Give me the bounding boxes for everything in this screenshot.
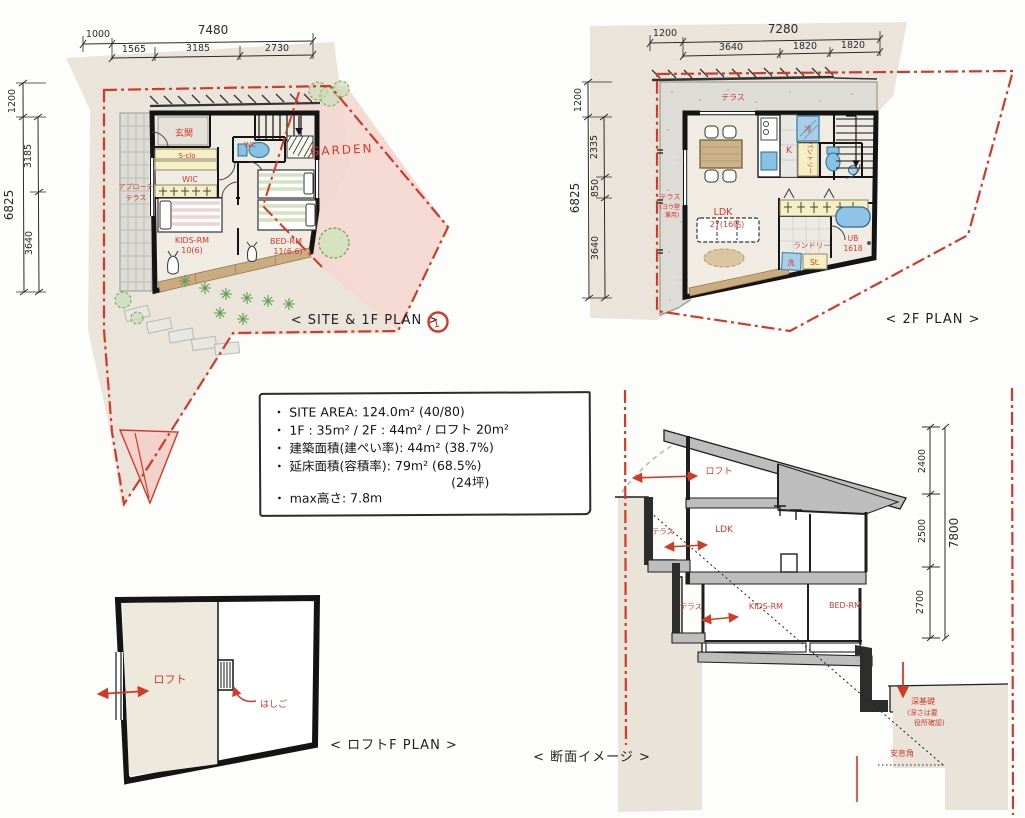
- rug: [704, 249, 744, 267]
- dim-sec-2700: 2700: [915, 590, 926, 614]
- roof-wedge: [778, 464, 898, 514]
- sec-label-repose: 安息角: [890, 748, 914, 758]
- dim-2f-2335: 2335: [589, 135, 600, 159]
- label-storage: St.: [810, 258, 820, 267]
- caption-1f: < SITE & 1F PLAN >: [291, 313, 440, 328]
- loft-window: [114, 652, 123, 720]
- sec-label-bed: BED-RM: [829, 601, 861, 610]
- ground-right: [890, 683, 1008, 810]
- sheet-marker-number: 1: [431, 316, 441, 330]
- sec-label-foundation: 深基礎: [911, 696, 935, 706]
- sec-label-foundation-n1: (深さは要: [907, 708, 938, 717]
- label-approach: アプローチ: [119, 183, 154, 191]
- label-bed-area: 11(6.6): [273, 247, 302, 256]
- caption-2f: < 2F PLAN >: [886, 312, 981, 327]
- section-view: ロフト テラス LDK テラス KIDS-RM BED-RM 深基礎 (深さは要…: [533, 388, 1013, 815]
- dim-1f-6825: 6825: [2, 190, 16, 221]
- sec-label-foundation-n2: 役所確認): [914, 718, 945, 727]
- dims-1f-left: [16, 80, 46, 295]
- note-total-area: ・ 延床面積(容積率): 79m² (68.5%): [273, 457, 579, 477]
- note-floor-areas: ・ 1F : 35m² / 2F : 44m² / ロフト 20m²: [273, 420, 579, 440]
- label-washer: 洗: [788, 258, 795, 267]
- dim-sec-2400: 2400: [917, 449, 928, 473]
- label-bath: UB: [848, 234, 859, 243]
- kids-bed: [158, 198, 222, 232]
- loft-floor: [122, 602, 218, 776]
- dim-sec-2500: 2500: [917, 519, 928, 543]
- garden-tree: [319, 228, 349, 258]
- label-terrace-side: テラス: [660, 193, 681, 201]
- label-bath-size: 1618: [843, 244, 862, 253]
- terrace-slab-1f: [672, 633, 705, 643]
- label-bed-rm: BED-RM: [270, 237, 302, 246]
- label-loft: ロフト: [154, 673, 187, 686]
- loft-slab: [686, 498, 778, 508]
- 1f-slab: [698, 652, 872, 666]
- dim-2f-6825: 6825: [568, 183, 582, 214]
- 2f-slab: [686, 572, 866, 584]
- dim-sec-7800: 7800: [947, 518, 961, 549]
- label-ldk: LDK: [714, 207, 734, 218]
- dim-1f-3640: 3640: [24, 231, 35, 255]
- plan-2f: テラス テラス (ヨウ壁 兼用) LDK 27(16帖) K 冷 パントリー ラ…: [568, 22, 1013, 331]
- sec-label-terrace1f: テラス: [680, 602, 702, 611]
- wic-closet: [155, 185, 217, 198]
- note-building-area: ・ 建築面積(建ぺい率): 44m² (38.7%): [273, 438, 579, 458]
- dim-1f-3185l: 3185: [23, 144, 34, 168]
- dim-1f-2730: 2730: [265, 43, 289, 54]
- caption-loft: < ロフトF PLAN >: [330, 738, 458, 753]
- stove: [761, 118, 777, 140]
- note-site-area: ・ SITE AREA: 124.0m² (40/80): [273, 402, 579, 422]
- terrace-slab-2f: [648, 560, 690, 572]
- dim-1f-1565: 1565: [122, 44, 146, 55]
- grade-curve: [622, 438, 686, 492]
- stove-section: [781, 554, 797, 572]
- dim-1f-7480: 7480: [198, 23, 229, 37]
- joist-2: [810, 643, 860, 652]
- loft-plan: ロフト はしご < ロフトF PLAN >: [99, 598, 458, 781]
- note-max-height: ・ max高さ: 7.8m: [273, 488, 579, 508]
- sec-label-loft: ロフト: [705, 467, 732, 477]
- retaining-wall-2: [672, 563, 680, 635]
- label-fridge: 冷: [804, 124, 812, 134]
- footing: [855, 645, 888, 712]
- sink: [761, 152, 777, 170]
- label-terrace-top: テラス: [721, 93, 745, 102]
- ladder: [218, 660, 233, 690]
- dim-2f-7280: 7280: [768, 22, 799, 36]
- sec-label-terrace2f: テラス: [652, 527, 674, 536]
- label-pantry: パントリー: [806, 142, 814, 175]
- dim-1f-1200: 1200: [7, 89, 18, 113]
- label-sclo: S-clo: [178, 152, 195, 160]
- label-genkan: 玄関: [175, 127, 193, 139]
- label-wic: WIC: [182, 175, 198, 184]
- spec-notes-box: ・ SITE AREA: 124.0m² (40/80) ・ 1F : 35m²…: [259, 391, 592, 517]
- label-terrace-note1: (ヨウ壁: [660, 203, 680, 211]
- approach-terrace: [120, 113, 152, 291]
- label-laundry: ランドリー: [793, 241, 831, 250]
- caption-section: < 断面イメージ >: [533, 750, 651, 765]
- drawing-sheet: 玄関 S-clo WIC WC アプローチ テラス KIDS-RM 10(6) …: [0, 0, 1025, 818]
- label-ladder: はしご: [260, 698, 287, 710]
- dim-2f-3640l: 3640: [590, 236, 601, 260]
- dim-2f-1820b: 1820: [841, 40, 865, 51]
- boundary-right-sec: [1012, 388, 1013, 815]
- label-terrace-note2: 兼用): [665, 211, 679, 219]
- label-wc: WC: [244, 141, 256, 149]
- sec-label-kids: KIDS-RM: [749, 602, 783, 611]
- dim-2f-850: 850: [590, 179, 601, 197]
- label-terrace-1f: テラス: [126, 194, 147, 202]
- dim-1f-1000: 1000: [86, 29, 110, 40]
- dim-2f-1200l: 1200: [573, 88, 584, 112]
- label-ldk-area: 27(16帖): [710, 219, 745, 229]
- dim-2f-1200t: 1200: [653, 28, 677, 39]
- bedroom-beds: [258, 170, 316, 230]
- dim-2f-1820a: 1820: [793, 41, 817, 52]
- joist-1: [706, 643, 806, 652]
- label-kids-rm: KIDS-RM: [175, 236, 209, 245]
- label-kids-area: 10(6): [181, 246, 203, 255]
- dim-1f-3185t: 3185: [186, 43, 210, 54]
- sec-label-ldk: LDK: [715, 525, 734, 535]
- dim-2f-3640t: 3640: [719, 42, 743, 53]
